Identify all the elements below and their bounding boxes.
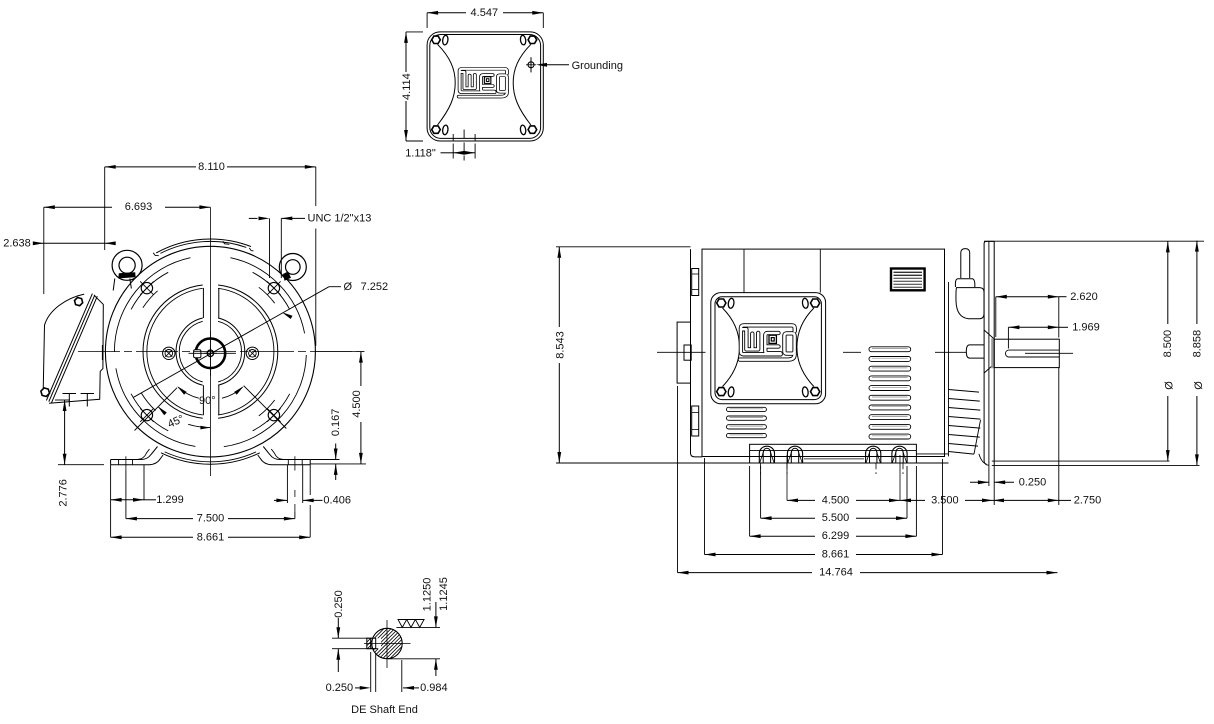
svg-text:90°: 90° <box>199 395 216 407</box>
svg-text:7.500: 7.500 <box>197 513 225 525</box>
svg-text:2.750: 2.750 <box>1074 494 1102 506</box>
svg-text:4.114: 4.114 <box>401 73 413 100</box>
svg-text:1.1250: 1.1250 <box>421 578 433 612</box>
svg-text:0.250: 0.250 <box>326 682 354 694</box>
svg-text:8.661: 8.661 <box>822 549 850 561</box>
svg-text:6.693: 6.693 <box>125 201 153 213</box>
svg-text:0.406: 0.406 <box>323 494 351 506</box>
svg-text:8.858: 8.858 <box>1191 330 1203 358</box>
svg-text:0.984: 0.984 <box>420 682 448 694</box>
svg-text:2.620: 2.620 <box>1070 291 1098 303</box>
svg-text:Ø: Ø <box>1164 381 1176 390</box>
svg-text:8.110: 8.110 <box>198 161 225 173</box>
svg-text:2.776: 2.776 <box>58 479 70 507</box>
svg-text:DE Shaft End: DE Shaft End <box>351 704 418 716</box>
svg-text:8.500: 8.500 <box>1162 330 1174 358</box>
svg-text:14.764: 14.764 <box>819 567 853 579</box>
svg-text:3.500: 3.500 <box>931 494 959 506</box>
svg-text:0.167: 0.167 <box>330 409 342 437</box>
svg-text:0.250: 0.250 <box>333 590 345 618</box>
svg-text:Ø 7.252: Ø 7.252 <box>344 281 389 293</box>
svg-text:8.661: 8.661 <box>197 531 225 543</box>
svg-text:Grounding: Grounding <box>572 60 623 72</box>
svg-text:4.547: 4.547 <box>471 7 499 19</box>
svg-text:2.638: 2.638 <box>3 237 31 249</box>
svg-text:5.500: 5.500 <box>822 512 850 524</box>
svg-text:1.299: 1.299 <box>156 494 184 506</box>
svg-text:0.250: 0.250 <box>1019 476 1047 488</box>
svg-text:1.118": 1.118" <box>405 148 436 160</box>
svg-text:1.1245: 1.1245 <box>438 577 450 611</box>
svg-text:8.543: 8.543 <box>555 331 567 359</box>
svg-text:Ø: Ø <box>1193 381 1205 390</box>
svg-text:UNC 1/2"x13: UNC 1/2"x13 <box>308 213 372 225</box>
svg-text:6.299: 6.299 <box>822 530 850 542</box>
svg-text:4.500: 4.500 <box>351 390 363 418</box>
svg-text:1.969: 1.969 <box>1072 321 1100 333</box>
svg-text:4.500: 4.500 <box>822 494 850 506</box>
